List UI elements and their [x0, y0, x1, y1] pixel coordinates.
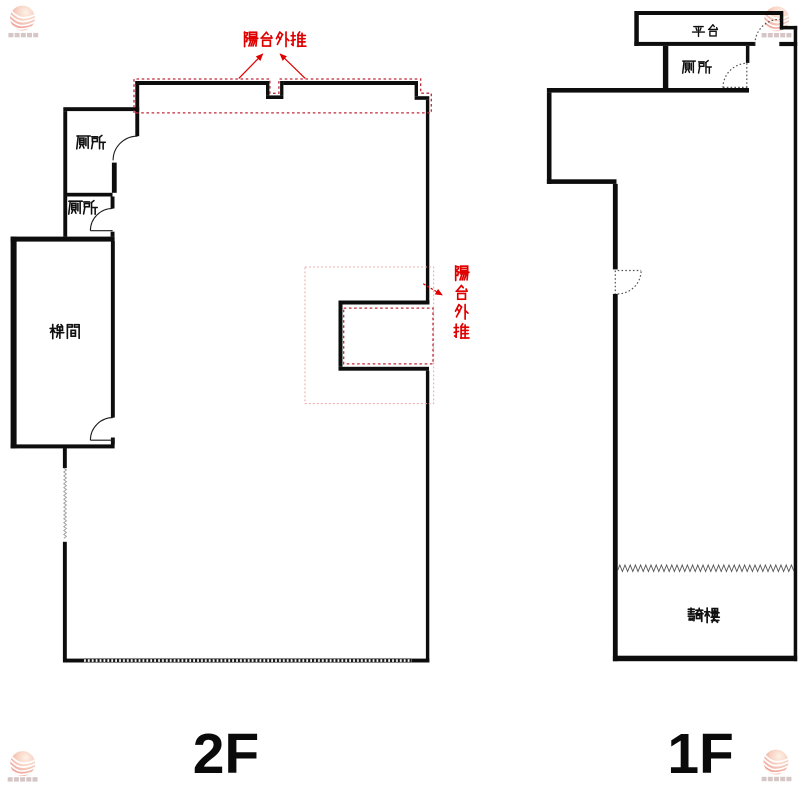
svg-text:2F: 2F: [193, 722, 260, 786]
svg-text:1F: 1F: [667, 722, 734, 786]
